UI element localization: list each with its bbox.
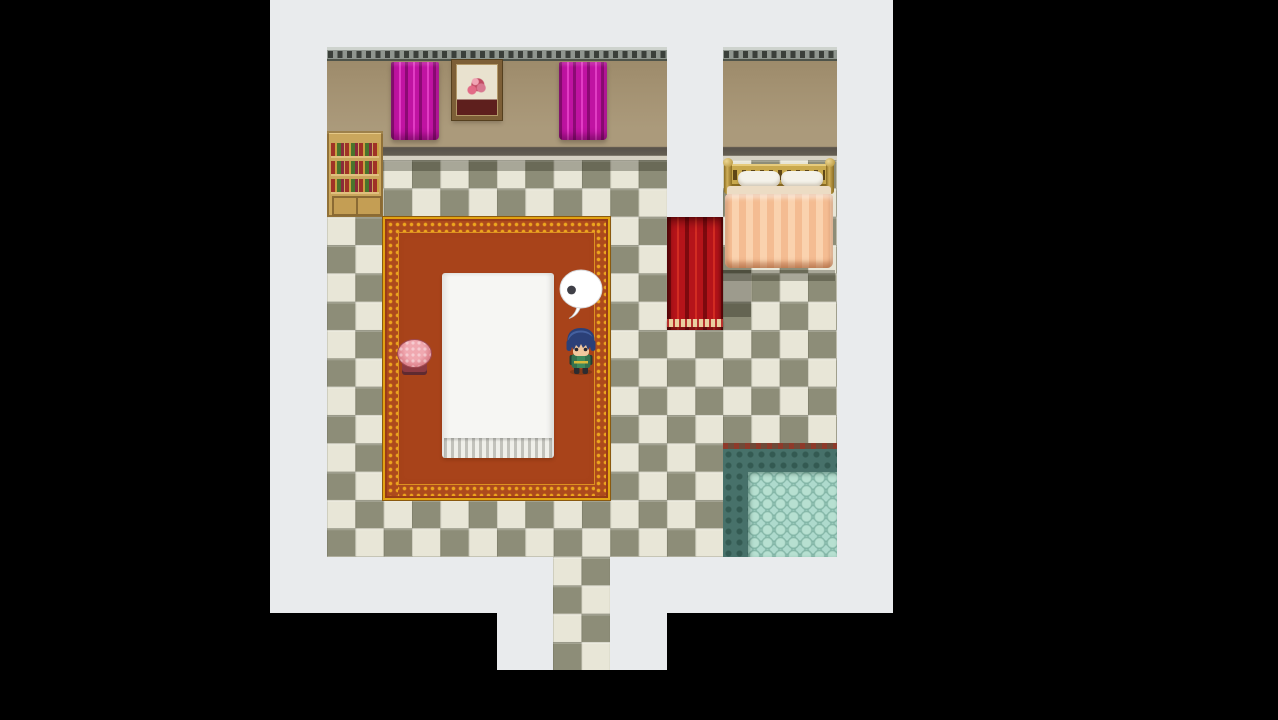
wall-right-room [723,47,837,160]
floor-doorway[interactable] [667,330,723,557]
carpet-border [387,221,606,232]
wall-cornice [723,47,837,61]
magenta-curtain-left [391,62,439,140]
thought-balloon [558,268,606,322]
red-doorway-curtain[interactable] [667,217,723,330]
exit-white-bank-right [610,613,667,670]
pool-water-edge-left [723,449,748,557]
book-row [331,143,379,156]
cabinet-door [356,196,382,216]
exit-white-bank-left [497,613,554,670]
magenta-curtain-right [559,62,607,140]
framed-flower-picture[interactable] [452,60,502,120]
curtain-shadow [723,270,751,317]
cornice-dentils [328,51,666,58]
pool-cobble-floor [748,472,837,557]
player-sprite [565,328,597,375]
curtain-fringe [667,319,723,327]
tablecloth-fringe [444,438,552,458]
pink-stool[interactable] [398,340,431,378]
cabinet-door [332,196,358,216]
thought-balloon-graphic [558,268,606,322]
cornice-dentils [724,51,836,58]
pillow-left [738,171,780,187]
book-row [331,161,379,174]
carpet-border [387,221,398,496]
striped-blanket [725,194,833,268]
carpet-border [387,485,606,496]
south-exit-corridor[interactable] [553,557,610,670]
white-table[interactable] [442,273,554,458]
bath-pool[interactable] [723,443,837,557]
wall-cornice [327,47,667,61]
double-bed[interactable] [723,160,835,270]
book-row [331,179,379,192]
pillow-right [781,171,823,187]
player-character[interactable] [565,328,597,375]
stool-cushion [398,340,431,367]
video-frame [0,0,1278,720]
game-viewport[interactable] [270,0,893,720]
bookshelf[interactable] [327,131,383,217]
